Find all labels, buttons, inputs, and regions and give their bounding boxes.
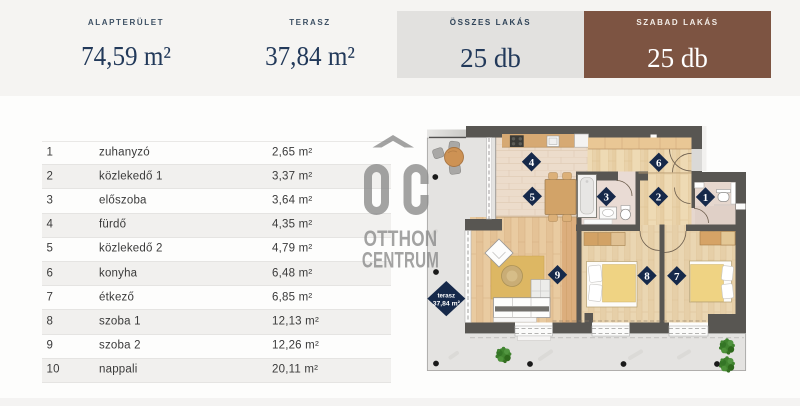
svg-text:7: 7 — [674, 271, 680, 283]
svg-text:5: 5 — [530, 191, 536, 203]
svg-text:8: 8 — [644, 271, 650, 283]
svg-text:CENTRUM: CENTRUM — [362, 249, 439, 273]
svg-text:3: 3 — [604, 192, 610, 204]
svg-text:1: 1 — [703, 192, 709, 204]
svg-text:2: 2 — [656, 192, 662, 204]
svg-text:9: 9 — [555, 270, 561, 282]
svg-text:terasz: terasz — [437, 293, 455, 300]
svg-text:OTTHON: OTTHON — [364, 227, 438, 252]
svg-text:37,84 m²: 37,84 m² — [433, 301, 461, 308]
svg-text:6: 6 — [656, 157, 662, 169]
svg-text:4: 4 — [529, 157, 535, 169]
